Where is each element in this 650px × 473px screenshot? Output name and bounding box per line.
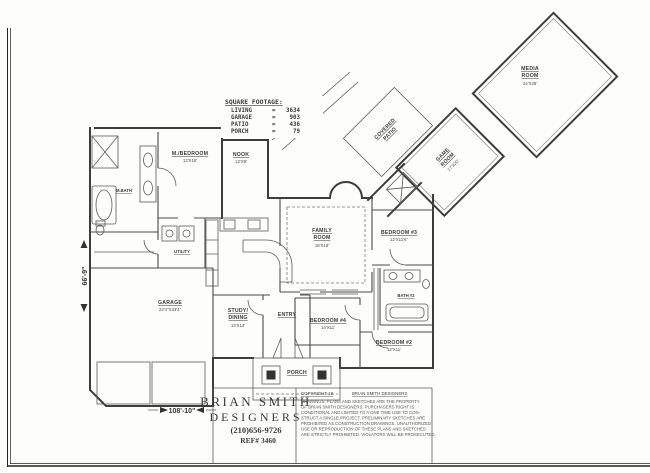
copyright-line: ARE STRICTLY PROHIBITED. VIOLATORS WILL … [301, 432, 436, 437]
height-dimension-label: 66'-9" [82, 267, 89, 286]
bedroom4-label: BEDROOM #4 [310, 318, 346, 324]
sqft-row-label: PATIO [231, 122, 249, 128]
sqft-row-label: GARAGE [231, 115, 252, 121]
room-labels: M./BEDROOM 13'X16' NOOK 12'X9' FAMILY RO… [116, 66, 539, 376]
porch-label: PORCH [287, 370, 307, 376]
master-bath-label: M.BATH [116, 188, 132, 193]
garage-bays [97, 362, 205, 404]
width-dimension-label: 108'-10" [169, 408, 196, 415]
master-bath-fixtures [92, 136, 156, 252]
media-room-label-2: ROOM [522, 73, 539, 79]
floor-plan-sheet: M./BEDROOM 13'X16' NOOK 12'X9' FAMILY RO… [0, 0, 650, 473]
master-bedroom-label: M./BEDROOM [172, 151, 208, 157]
copyright-block: COPYRIGHT 19 BRIAN SMITH DESIGNERS DRAWI… [301, 391, 436, 437]
utility-fixtures [162, 226, 194, 241]
entry-label: ENTRY [278, 312, 297, 318]
sqft-row-value: 436 [290, 122, 301, 128]
copyright-header-right: BRIAN SMITH DESIGNERS [352, 391, 407, 396]
copyright-line: CONDITIONAL AND LIMITED TO A ONE TIME US… [301, 410, 421, 415]
copyright-header-left: COPYRIGHT 19 [301, 391, 334, 396]
copyright-line: PROHIBITED AS CONSTRUCTION DRAWINGS. UNA… [301, 421, 431, 426]
study-label-2: DINING [228, 315, 247, 321]
media-room-label-1: MEDIA [521, 66, 539, 72]
game-room-outline [396, 108, 503, 215]
sqft-row-label: LIVING [231, 108, 252, 114]
master-bedroom-dim: 13'X16' [183, 158, 198, 163]
study-label-1: STUDY/ [228, 308, 249, 314]
copyright-line: STRUCT A SINGLE PROJECT. PRELIMINARY SKE… [301, 416, 425, 421]
sqft-row-eq: = [272, 108, 276, 114]
square-footage-table: SQUARE FOOTAGE: LIVING = 3634 GARAGE = 9… [221, 96, 323, 138]
copyright-line: DRAWINGS, PLANS AND SKETCHES ARE THE PRO… [301, 399, 420, 404]
designer-name-line1: BRIAN SMITH [200, 394, 312, 409]
bath2-fixtures [374, 268, 430, 330]
reference-number: REF# 3460 [240, 436, 276, 445]
bedroom3-dim: 12'X11'6" [390, 237, 408, 242]
sqft-row-eq: = [272, 122, 276, 128]
interior-walls [90, 132, 433, 368]
height-dimension: 66'-9" [81, 240, 90, 312]
entry-double-door [273, 338, 303, 358]
copyright-line: USE OR REPRODUCTION OF THESE PLANS AND S… [301, 427, 426, 432]
exterior-walls [90, 128, 433, 406]
sqft-row-value: 79 [293, 129, 300, 135]
wing-connector-walls [272, 72, 421, 216]
nook-dim: 12'X9' [235, 159, 247, 164]
garage-label: GARAGE [158, 300, 182, 306]
nook-label: NOOK [233, 152, 249, 158]
garage-dim: 23'4"X33'4" [159, 307, 182, 312]
sqft-title: SQUARE FOOTAGE: [225, 98, 283, 106]
media-room-dim: 24'X28' [523, 81, 538, 86]
bedroom3-label: BEDROOM #3 [381, 230, 417, 236]
family-room-label-2: ROOM [314, 235, 331, 241]
bedroom2-dim: 12'X11' [387, 347, 401, 352]
floor-plan-drawing: M./BEDROOM 13'X16' NOOK 12'X9' FAMILY RO… [0, 0, 650, 473]
bedroom2-label: BEDROOM #2 [376, 340, 412, 346]
media-room-outline [473, 13, 617, 157]
study-dim: 13'X13' [231, 323, 246, 328]
sqft-row-eq: = [272, 129, 276, 135]
sqft-row-eq: = [272, 115, 276, 121]
utility-label: UTILITY [174, 249, 190, 254]
designer-phone: (210)656-9726 [231, 425, 282, 435]
family-room-label-1: FAMILY [312, 228, 332, 234]
designer-name-line2: DESIGNERS [209, 410, 302, 424]
bath2-label: BATH #2 [397, 293, 415, 298]
family-room-dim: 18'X18' [315, 243, 330, 248]
bedroom4-dim: 14'X11' [321, 325, 335, 330]
door-swing-arcs [144, 168, 406, 348]
sqft-row-value: 3634 [286, 108, 300, 114]
sqft-row-value: 903 [290, 115, 301, 121]
copyright-line: OF BRIAN SMITH DESIGNERS. PURCHASERS RIG… [301, 405, 414, 410]
sqft-row-label: PORCH [231, 129, 249, 135]
kitchen-fixtures [206, 218, 292, 286]
